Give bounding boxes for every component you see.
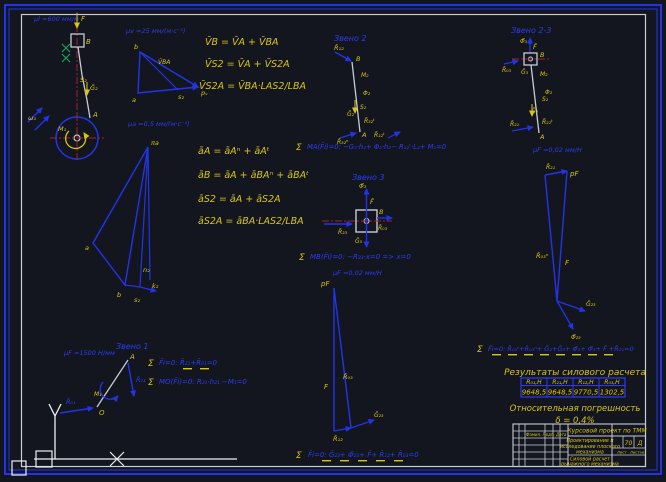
polyfull-f-label[interactable]: F [565, 259, 570, 267]
cad-drawing-canvas[interactable]: μl =600 мм/м F B S₂ Ḡ₂ A M₁ ω₁ μv =25 мм… [0, 0, 666, 482]
link23-phi3-label[interactable]: Φ̄₃ [520, 38, 528, 45]
link1-force-equation[interactable]: F̄i=0: R̄₂₁+R̄₀₁=0 [159, 358, 218, 367]
poly23-r12-label[interactable]: R̄₁₂ [333, 434, 343, 443]
link1-a-label[interactable]: A [129, 353, 135, 361]
link23-diagram[interactable]: Звено 2-3 Φ̄₃ F̄ B R̄₀₃ Ḡ₃ M₂ Φ₂ S₂ Ḡ₂ R… [502, 26, 582, 154]
link23-r03-label[interactable]: R̄₀₃ [502, 67, 512, 74]
point-b-label[interactable]: B [86, 38, 91, 46]
vel-formula-3[interactable]: V̄S2A = V̄BA·LAS2/LBA [199, 80, 306, 92]
link1-diagram[interactable]: μF =1500 Н/мм Звено 1 R̄₀₁ R̄₂₁ M₁ A O [60, 342, 149, 417]
acc-formula-3[interactable]: āS2 = āA + āS2A [198, 194, 281, 205]
link3-f-label[interactable]: F̄ [370, 197, 375, 206]
link2-s2-label[interactable]: S₂ [360, 104, 367, 111]
error-title: Относительная погрешность [510, 404, 641, 414]
acceleration-formulas[interactable]: μa =0,5 мм/(м·с⁻²) āA = āAⁿ + āAᵗ āB = ā… [127, 120, 309, 227]
table-header-2: R₂₁,Н [552, 379, 568, 386]
sigma-symbol: Σ [477, 345, 483, 355]
acc-formula-2[interactable]: āB = āA + āBAⁿ + āBAᵗ [198, 170, 309, 181]
link23-r21t-label[interactable]: R̄₂₁ᵗ [542, 119, 553, 126]
velocity-polygon[interactable]: μv =25 мм/(м·с⁻¹) b a s₂ pᵥ V̄BA [125, 27, 208, 104]
ucs-icon [12, 404, 237, 475]
moment-m1-label[interactable]: M₁ [58, 125, 67, 133]
link2-phi2-label[interactable]: Φ₂ [363, 90, 371, 97]
link2-m2-label[interactable]: M₂ [361, 72, 369, 79]
poly23-force-equation[interactable]: F̄i=0: Ḡ₂₃+ Φ̄₂₃+ F̄+ R̄₁₂+ R̄₀₃=0 [308, 450, 419, 459]
link3-equation[interactable]: Σ MB(F̄i)=0: −R₂₃·x=0 => x=0 μF =0,02 мм… [299, 252, 411, 277]
link23-phi2-label[interactable]: Φ₂ [545, 89, 553, 96]
moment-arc-icon [100, 382, 118, 399]
vel-vba-label[interactable]: V̄BA [158, 59, 170, 66]
link3-r23-label[interactable]: R̄₂₃ [338, 229, 348, 236]
titleblock-scale: Д [637, 440, 643, 447]
titleblock-doc-2: рычажного механизма [560, 463, 619, 468]
link1-r21-label[interactable]: R̄₂₁ [136, 375, 146, 384]
equation-underlines [492, 354, 613, 355]
link2-b-label[interactable]: B [356, 55, 361, 63]
full-equation[interactable]: Σ F̄i=0: R̄₀₃ᵗ+R̄₀₃ⁿ+ Ḡ₂+Ḡ₃+ Φ̄₂+ Φ̄₃+ F… [477, 344, 634, 356]
force-polygon-full[interactable]: R̄₂₁ pF F R̄₀₃ⁿ Ḡ₂₃ Φ̄₂₃ [536, 164, 596, 341]
sigma-symbol: Σ [148, 378, 154, 388]
link23-m2-label[interactable]: M₂ [540, 71, 548, 78]
link23-g3-label[interactable]: Ḡ₃ [521, 69, 529, 76]
force-polygon-23[interactable]: pF F R̄₀₃ R̄₁₂ Ḡ₂₃ [320, 280, 384, 443]
polyfull-g23-label[interactable]: Ḡ₂₃ [586, 301, 596, 308]
poly23-equation[interactable]: Σ F̄i=0: Ḡ₂₃+ Φ̄₂₃+ F̄+ R̄₁₂+ R̄₀₃=0 [296, 450, 419, 462]
sigma-symbol: Σ [148, 359, 154, 369]
link3-title[interactable]: Звено 3 [352, 173, 385, 182]
link2-equation[interactable]: Σ MA(F̄i)=0: −G₂·h₂+ Φ₂·h₂− R₁₂ᵗ·L₂+ M₂=… [296, 142, 446, 153]
acc-point-s2[interactable]: s₂ [134, 296, 140, 304]
results-panel[interactable]: Результаты силового расчета R₀₁,Н R₂₁,Н … [504, 368, 646, 426]
point-s2-label[interactable]: S₂ [80, 76, 87, 84]
table-header-4: R₀₃,Н [604, 379, 620, 386]
titleblock-columns: Фамил. Подп. Дата [526, 432, 567, 437]
sigma-symbol: Σ [296, 451, 302, 461]
link23-f-label[interactable]: F̄ [533, 42, 538, 51]
full-force-equation[interactable]: F̄i=0: R̄₀₃ᵗ+R̄₀₃ⁿ+ Ḡ₂+Ḡ₃+ Φ̄₂+ Φ̄₃+ F̄ … [488, 344, 634, 353]
link1-scale-label[interactable]: μF =1500 Н/мм [63, 349, 115, 357]
table-value-1: 9648,5 [522, 389, 547, 397]
table-value-3: 9770,5 [574, 389, 599, 397]
equation-underlines [322, 460, 403, 461]
link2-r32t-label[interactable]: R̄₃₂ᵗ [364, 118, 375, 125]
link3-phi3-label[interactable]: Φ̄₃ [359, 183, 367, 190]
acc-point-n[interactable]: n₂ [143, 266, 150, 274]
vel-formula-2[interactable]: V̄S2 = V̄A + V̄S2A [205, 58, 290, 70]
vel-point-b[interactable]: b [134, 43, 138, 51]
table-value-4: 1302,5 [600, 389, 625, 397]
link23-r21-label[interactable]: R̄₂₁ [510, 121, 520, 128]
titleblock-subject-1: Проектирование и [567, 438, 614, 444]
poly23-g23-label[interactable]: Ḡ₂₃ [374, 412, 384, 419]
link3-moment-equation[interactable]: MB(F̄i)=0: −R₂₃·x=0 => x=0 [310, 252, 411, 261]
velocity-scale-label[interactable]: μv =25 мм/(м·с⁻¹) [125, 27, 185, 35]
mechanism-diagram[interactable]: μl =600 мм/м F B S₂ Ḡ₂ A M₁ ω₁ [28, 12, 104, 162]
vel-point-s2[interactable]: s₂ [178, 93, 184, 101]
acc-formula-4[interactable]: āS2A = āBA·LAS2/LBA [198, 216, 304, 227]
velocity-formulas[interactable]: V̄B = V̄A + V̄BA V̄S2 = V̄A + V̄S2A V̄S2… [199, 36, 306, 92]
table-value-2: 9648,5 [548, 389, 573, 397]
cad-model-space[interactable]: μl =600 мм/м F B S₂ Ḡ₂ A M₁ ω₁ μv =25 мм… [0, 0, 666, 482]
acc-point-k[interactable]: k₂ [152, 282, 159, 290]
link3-b-label[interactable]: B [379, 208, 384, 216]
acceleration-polygon[interactable]: πa a b s₂ k₂ n₂ [85, 139, 159, 304]
titleblock-subject-3: механизма [576, 451, 604, 456]
omega-label[interactable]: ω₁ [28, 114, 36, 122]
force-f-label[interactable]: F [81, 15, 86, 23]
sigma-symbol: Σ [296, 143, 302, 153]
titleblock-mass: 70 [625, 440, 633, 447]
poly23-f-label[interactable]: F [324, 383, 329, 391]
weight-g2-label[interactable]: Ḡ₂ [90, 83, 98, 92]
table-header-1: R₀₁,Н [526, 379, 542, 386]
link1-o-label[interactable]: O [99, 409, 105, 417]
link1-title[interactable]: Звено 1 [116, 342, 149, 351]
mechanism-scale-label[interactable]: μl =600 мм/м [33, 15, 79, 23]
link2-moment-equation[interactable]: MA(F̄i)=0: −G₂·h₂+ Φ₂·h₂− R₁₂ᵗ·L₂+ M₂=0 [307, 142, 446, 151]
link2-diagram[interactable]: Звено 2 R̄₁₂ B M₂ Φ₂ S₂ Ḡ₂ R̄₃₂ᵗ R̄₃₂ⁿ A… [334, 34, 400, 146]
polyfull-pole[interactable]: pF [569, 170, 579, 178]
table-header-3: R₁₂,Н [578, 379, 594, 386]
link23-b-label[interactable]: B [540, 51, 545, 59]
titleblock-project: Курсовой проект по ТММ [567, 428, 647, 435]
link2-title[interactable]: Звено 2 [334, 34, 367, 43]
acc-formula-1[interactable]: āA = āAⁿ + āAᵗ [198, 146, 270, 157]
acc-point-a[interactable]: a [85, 244, 89, 252]
titleblock-sheet-label: Лист [616, 450, 627, 455]
results-title: Результаты силового расчета [504, 368, 646, 378]
link23-scale-label[interactable]: μF =0,02 мм/Н [532, 146, 582, 154]
link23-a-label[interactable]: A [539, 133, 544, 141]
polyfull-r03n-label[interactable]: R̄₀₃ⁿ [536, 251, 549, 260]
vel-formula-1[interactable]: V̄B = V̄A + V̄BA [205, 36, 279, 48]
link2-a-label[interactable]: A [361, 131, 366, 139]
poly23-r03-label[interactable]: R̄₀₃ [343, 372, 353, 381]
poly23-scale-label[interactable]: μF =0,02 мм/Н [332, 269, 382, 277]
sigma-symbol: Σ [299, 253, 305, 263]
link1-r01-label[interactable]: R̄₀₁ [66, 397, 76, 406]
poly23-pole[interactable]: pF [320, 280, 330, 288]
acceleration-scale-label[interactable]: μa =0,5 мм/(м·с⁻²) [127, 120, 190, 128]
titleblock-subject-2: исследование плоского [560, 445, 620, 450]
vel-point-a[interactable]: a [132, 96, 136, 104]
link3-r03-label[interactable]: R̄₀₃ [378, 225, 388, 232]
link1-moment-equation[interactable]: MO(F̄i)=0: R₂₁·h₂₁ −M₁=0 [159, 377, 247, 386]
link23-title[interactable]: Звено 2-3 [511, 26, 552, 35]
link1-equations[interactable]: Σ F̄i=0: R̄₂₁+R̄₀₁=0 Σ MO(F̄i)=0: R₂₁·h₂… [148, 358, 247, 388]
link23-s2-label[interactable]: S₂ [542, 96, 549, 103]
link1-m1-label[interactable]: M₁ [94, 391, 102, 398]
moment-arc-icon [66, 131, 86, 148]
link2-r12-label[interactable]: R̄₁₂ [334, 43, 344, 52]
link3-g3-label[interactable]: Ḡ₃ [355, 238, 363, 245]
link2-r12t-note[interactable]: R̄₁₂ᵗ [374, 132, 385, 139]
acc-point-b[interactable]: b [117, 291, 121, 299]
titleblock-sheets-label: Листов [629, 450, 645, 455]
spring-icon [62, 44, 70, 62]
link2-g2-label[interactable]: Ḡ₂ [347, 111, 355, 118]
link3-diagram[interactable]: Звено 3 Φ̄₃ F̄ B R̄₂₃ R̄₀₃ Ḡ₃ [322, 173, 392, 247]
point-a-label[interactable]: A [92, 111, 98, 119]
link23-g2-label[interactable]: Ḡ₂ [531, 108, 539, 115]
acc-pole[interactable]: πa [151, 139, 159, 147]
polyfull-phi23-label[interactable]: Φ̄₂₃ [571, 334, 581, 341]
title-block: Курсовой проект по ТММ Проектирование и … [513, 424, 647, 468]
polyfull-r21-label[interactable]: R̄₂₁ [546, 164, 556, 171]
